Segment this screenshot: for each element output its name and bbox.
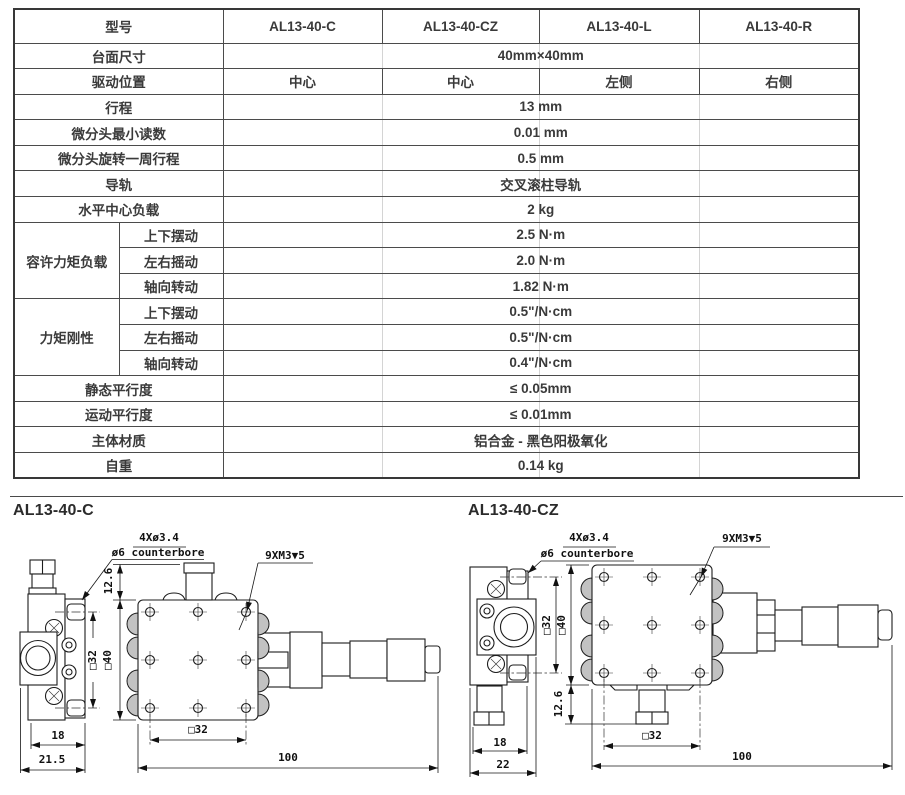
tap-callout-cz: 9XM3▼5: [712, 532, 772, 546]
model-name: AL13-40-CZ: [382, 9, 539, 43]
spec-value: 左侧: [539, 69, 699, 95]
spec-label: 运动平行度: [14, 401, 223, 427]
dim-body-width-c: 18: [36, 729, 80, 743]
spec-group-label: 力矩刚性: [14, 299, 119, 376]
dim-overall-length-c: 100: [266, 751, 310, 765]
spec-value: 13 mm: [223, 94, 859, 120]
spec-sublabel: 左右摇动: [119, 325, 223, 351]
table-row-material: 主体材质 铝合金 - 黑色阳极氧化: [14, 427, 859, 453]
spec-value: 中心: [382, 69, 539, 95]
plan-view-c: [127, 563, 440, 720]
hole-callout-c: 4Xø3.4: [129, 531, 189, 545]
table-row-model: 型号 AL13-40-C AL13-40-CZ AL13-40-L AL13-4…: [14, 9, 859, 43]
drawing-c: [20, 547, 440, 773]
spec-value: 右侧: [699, 69, 859, 95]
table-row-stiffness: 力矩刚性 上下摆动 0.5"/N·cm: [14, 299, 859, 325]
spec-value: ≤ 0.01mm: [223, 401, 859, 427]
spec-sublabel: 上下摆动: [119, 222, 223, 248]
model-name: AL13-40-R: [699, 9, 859, 43]
dim-table-size-c: □40: [101, 638, 115, 682]
spec-label: 型号: [14, 9, 223, 43]
spec-value: 0.5"/N·cm: [223, 299, 859, 325]
spec-label: 微分头旋转一周行程: [14, 145, 223, 171]
spec-value: ≤ 0.05mm: [223, 376, 859, 402]
table-row-static-par: 静态平行度 ≤ 0.05mm: [14, 376, 859, 402]
spec-value: 中心: [223, 69, 382, 95]
spec-sublabel: 轴向转动: [119, 273, 223, 299]
spec-label: 驱动位置: [14, 69, 223, 95]
table-row-weight: 自重 0.14 kg: [14, 453, 859, 479]
spec-value: 2.0 N·m: [223, 248, 859, 274]
spec-group-label: 容许力矩负载: [14, 222, 119, 299]
dim-knob-height-cz: 12.6: [552, 682, 566, 726]
table-row-surface: 台面尺寸 40mm×40mm: [14, 43, 859, 69]
spec-label: 自重: [14, 453, 223, 479]
table-row-stiffness: 轴向转动 0.4"/N·cm: [14, 350, 859, 376]
dim-side-pitch-c: □32: [86, 638, 100, 682]
table-row-moment-load: 轴向转动 1.82 N·m: [14, 273, 859, 299]
spec-value: 0.4"/N·cm: [223, 350, 859, 376]
spec-value: 1.82 N·m: [223, 273, 859, 299]
micrometer-head-cz: [713, 593, 892, 653]
spec-value: 0.5 mm: [223, 145, 859, 171]
spec-label: 行程: [14, 94, 223, 120]
spec-label: 台面尺寸: [14, 43, 223, 69]
tap-callout-c: 9XM3▼5: [255, 549, 315, 563]
spec-sublabel: 轴向转动: [119, 350, 223, 376]
table-row-stiffness: 左右摇动 0.5"/N·cm: [14, 325, 859, 351]
spec-sublabel: 上下摆动: [119, 299, 223, 325]
table-row-min-reading: 微分头最小读数 0.01 mm: [14, 120, 859, 146]
spec-value: 40mm×40mm: [223, 43, 859, 69]
model-name: AL13-40-L: [539, 9, 699, 43]
table-row-travel: 行程 13 mm: [14, 94, 859, 120]
spec-label: 主体材质: [14, 427, 223, 453]
dim-table-size-cz: □40: [555, 603, 569, 647]
spec-value: 2.5 N·m: [223, 222, 859, 248]
table-row-load: 水平中心负载 2 kg: [14, 197, 859, 223]
spec-sublabel: 左右摇动: [119, 248, 223, 274]
dim-overall-length-cz: 100: [720, 750, 764, 764]
spec-label: 静态平行度: [14, 376, 223, 402]
hole-callout-cz: 4Xø3.4: [559, 531, 619, 545]
spec-table: 型号 AL13-40-C AL13-40-CZ AL13-40-L AL13-4…: [13, 8, 860, 479]
micrometer-head-c: [258, 632, 440, 688]
spec-label: 微分头最小读数: [14, 120, 223, 146]
table-row-moment-load: 容许力矩负载 上下摆动 2.5 N·m: [14, 222, 859, 248]
table-row-motion-par: 运动平行度 ≤ 0.01mm: [14, 401, 859, 427]
spec-value: 交叉滚柱导轨: [223, 171, 859, 197]
cbore-callout-c: ø6 counterbore: [108, 546, 208, 560]
table-row-moment-load: 左右摇动 2.0 N·m: [14, 248, 859, 274]
table-row-guide: 导轨 交叉滚柱导轨: [14, 171, 859, 197]
drawing-cz: [470, 547, 892, 777]
spec-label: 水平中心负载: [14, 197, 223, 223]
spec-value: 铝合金 - 黑色阳极氧化: [223, 427, 859, 453]
dim-total-width-c: 21.5: [30, 753, 74, 767]
model-name: AL13-40-C: [223, 9, 382, 43]
table-row-per-rev: 微分头旋转一周行程 0.5 mm: [14, 145, 859, 171]
spec-value: 2 kg: [223, 197, 859, 223]
dim-hole-pitch-c: □32: [176, 723, 220, 737]
table-row-drive-pos: 驱动位置 中心 中心 左侧 右侧: [14, 69, 859, 95]
spec-sheet-page: 型号 AL13-40-C AL13-40-CZ AL13-40-L AL13-4…: [0, 0, 905, 795]
spec-value: 0.5"/N·cm: [223, 325, 859, 351]
dim-total-width-cz: 22: [481, 758, 525, 772]
dim-hole-pitch-cz: □32: [630, 729, 674, 743]
spec-value: 0.14 kg: [223, 453, 859, 479]
dim-body-width-cz: 18: [478, 736, 522, 750]
spec-value: 0.01 mm: [223, 120, 859, 146]
dim-knob-height-c: 12.6: [102, 559, 116, 603]
plan-view-cz: [581, 565, 892, 724]
dim-side-pitch-cz: □32: [540, 603, 554, 647]
spec-label: 导轨: [14, 171, 223, 197]
cbore-callout-cz: ø6 counterbore: [537, 547, 637, 561]
